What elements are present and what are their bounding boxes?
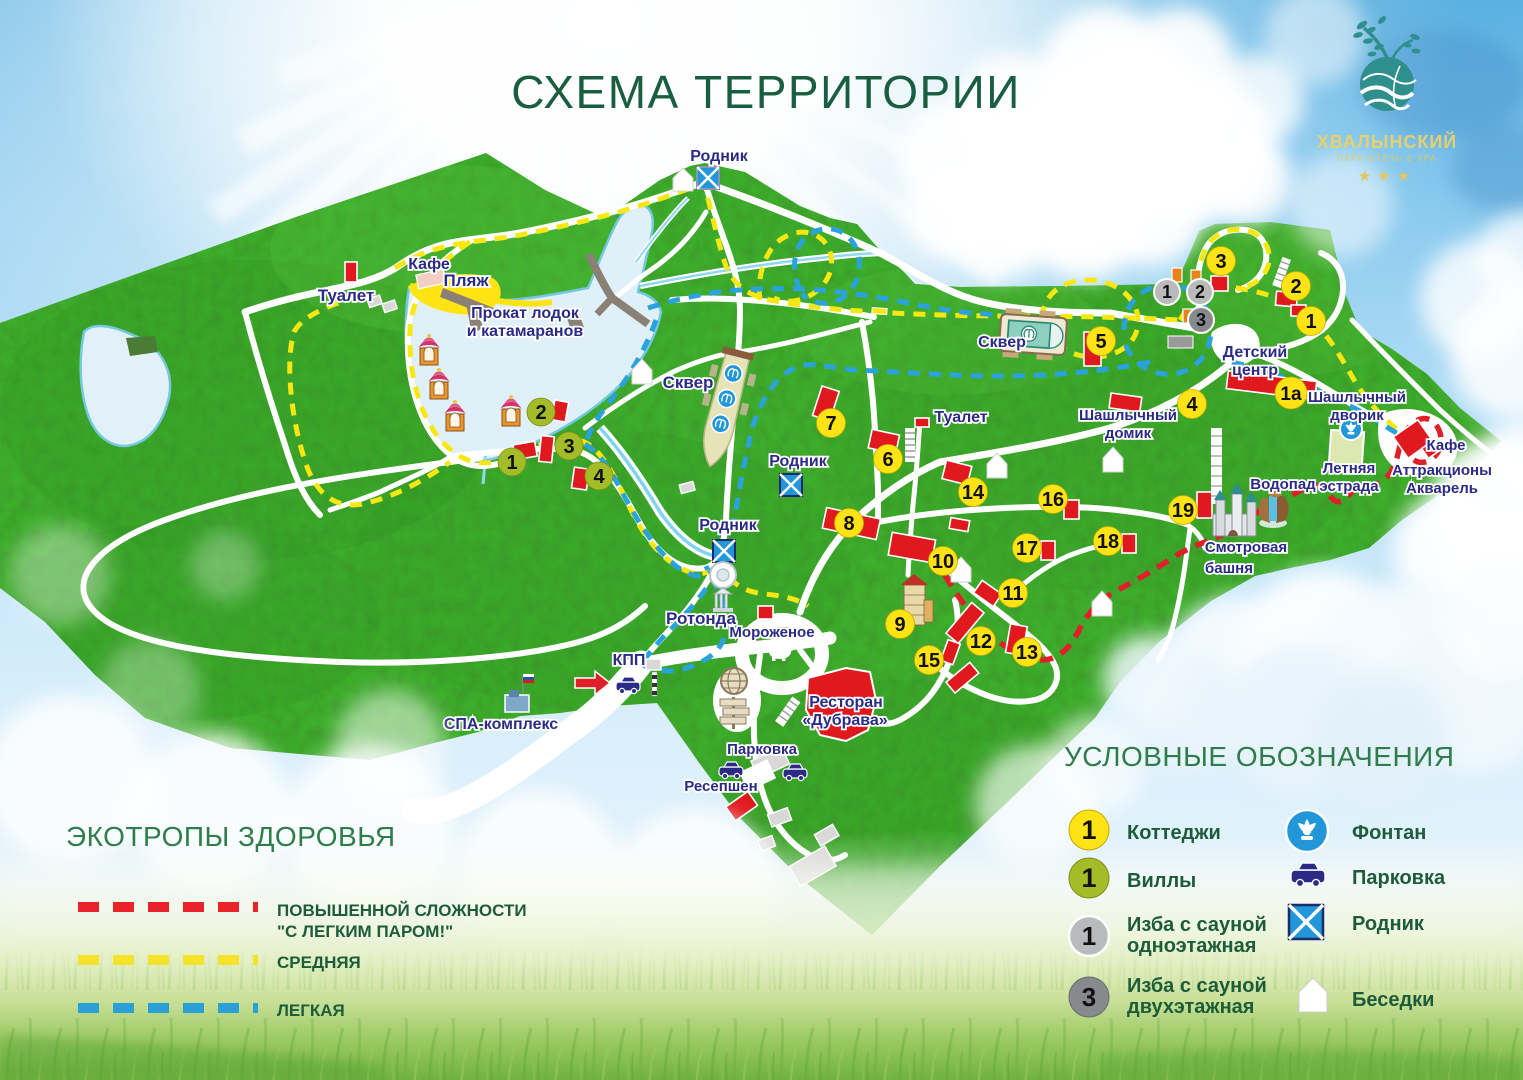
svg-text:Мороженое: Мороженое — [729, 624, 814, 641]
svg-text:Ротонда: Ротонда — [666, 609, 736, 628]
svg-text:УСЛОВНЫЕ ОБОЗНАЧЕНИЯ: УСЛОВНЫЕ ОБОЗНАЧЕНИЯ — [1064, 741, 1455, 772]
svg-text:1: 1 — [1081, 815, 1096, 845]
svg-text:8: 8 — [843, 513, 854, 535]
svg-text:12: 12 — [970, 631, 992, 653]
svg-text:одноэтажная: одноэтажная — [1127, 935, 1256, 957]
svg-text:3: 3 — [1196, 310, 1206, 330]
svg-text:ПОВЫШЕННОЙ СЛОЖНОСТИ: ПОВЫШЕННОЙ СЛОЖНОСТИ — [277, 901, 527, 920]
svg-text:"С ЛЕГКИМ ПАРОМ!": "С ЛЕГКИМ ПАРОМ!" — [277, 922, 453, 941]
svg-text:9: 9 — [894, 614, 905, 636]
svg-text:16: 16 — [1042, 489, 1064, 511]
svg-text:дворик: дворик — [1330, 407, 1384, 424]
svg-text:эстрада: эстрада — [1319, 478, 1379, 495]
svg-text:«Дубрава»: «Дубрава» — [802, 712, 887, 729]
svg-text:17: 17 — [1016, 538, 1038, 560]
svg-text:и катамаранов: и катамаранов — [467, 323, 584, 340]
svg-text:центр: центр — [1232, 362, 1278, 379]
svg-text:14: 14 — [962, 482, 985, 504]
svg-text:Акварель: Акварель — [1406, 480, 1478, 497]
svg-text:2: 2 — [1195, 282, 1205, 302]
svg-text:Детский: Детский — [1223, 344, 1287, 361]
svg-text:Водопад: Водопад — [1250, 476, 1316, 493]
svg-text:двухэтажная: двухэтажная — [1127, 996, 1254, 1018]
svg-text:4: 4 — [1186, 394, 1198, 416]
svg-text:Летняя: Летняя — [1323, 460, 1376, 477]
svg-text:Кафе: Кафе — [1427, 437, 1466, 454]
svg-text:3: 3 — [1082, 982, 1096, 1012]
svg-text:1: 1 — [1081, 863, 1096, 893]
svg-text:Шашлычный: Шашлычный — [1308, 389, 1406, 406]
svg-text:1: 1 — [1305, 311, 1316, 333]
svg-text:1a: 1a — [1280, 384, 1302, 405]
svg-text:★★★: ★★★ — [1358, 168, 1416, 185]
svg-text:11: 11 — [1002, 583, 1023, 605]
svg-text:Сквер: Сквер — [978, 334, 1026, 351]
svg-text:СРЕДНЯЯ: СРЕДНЯЯ — [277, 953, 361, 972]
svg-text:Родник: Родник — [699, 517, 757, 534]
svg-text:башня: башня — [1205, 560, 1253, 577]
svg-text:Парковка: Парковка — [727, 741, 797, 758]
svg-text:1: 1 — [1082, 921, 1096, 951]
svg-text:Пляж: Пляж — [444, 271, 490, 290]
svg-text:Шашлычный: Шашлычный — [1079, 407, 1177, 424]
svg-text:Туалет: Туалет — [934, 409, 987, 426]
svg-text:Сквер: Сквер — [663, 373, 714, 392]
svg-text:Родник: Родник — [1352, 913, 1425, 935]
svg-text:Смотровая: Смотровая — [1205, 539, 1287, 556]
svg-text:2: 2 — [1290, 276, 1301, 298]
svg-text:ЛЕГКАЯ: ЛЕГКАЯ — [277, 1001, 345, 1020]
svg-text:13: 13 — [1016, 642, 1038, 664]
svg-text:ЭКОТРОПЫ ЗДОРОВЬЯ: ЭКОТРОПЫ ЗДОРОВЬЯ — [66, 821, 396, 852]
svg-text:СХЕМА ТЕРРИТОРИИ: СХЕМА ТЕРРИТОРИИ — [511, 66, 1021, 118]
svg-text:Туалет: Туалет — [318, 286, 375, 305]
svg-text:4: 4 — [593, 466, 605, 488]
svg-text:Беседки: Беседки — [1352, 989, 1434, 1011]
svg-text:3: 3 — [563, 436, 574, 458]
svg-text:3: 3 — [1215, 251, 1226, 273]
svg-text:Виллы: Виллы — [1127, 870, 1196, 892]
svg-text:Родник: Родник — [690, 148, 748, 165]
svg-text:Коттеджи: Коттеджи — [1127, 822, 1221, 844]
svg-text:15: 15 — [918, 650, 940, 672]
svg-text:Изба с сауной: Изба с сауной — [1127, 914, 1267, 936]
svg-text:Родник: Родник — [769, 453, 827, 470]
svg-text:Аттракционы: Аттракционы — [1392, 462, 1492, 479]
svg-text:19: 19 — [1172, 500, 1194, 522]
svg-text:6: 6 — [882, 449, 893, 471]
svg-text:1: 1 — [1162, 282, 1172, 302]
svg-text:КПП: КПП — [613, 652, 646, 669]
svg-text:10: 10 — [932, 551, 954, 573]
svg-text:СПА-комплекс: СПА-комплекс — [444, 716, 558, 733]
svg-text:Ресепшен: Ресепшен — [684, 778, 757, 795]
svg-text:Ресторан: Ресторан — [809, 694, 883, 711]
svg-text:Парковка: Парковка — [1352, 867, 1446, 889]
svg-text:7: 7 — [825, 413, 836, 435]
svg-text:1: 1 — [506, 452, 517, 474]
svg-text:5: 5 — [1095, 331, 1106, 353]
svg-text:ПАРК-ОТЕЛЬ & SPA: ПАРК-ОТЕЛЬ & SPA — [1337, 154, 1437, 163]
svg-text:ХВАЛЫНСКИЙ: ХВАЛЫНСКИЙ — [1317, 131, 1457, 152]
svg-text:домик: домик — [1105, 425, 1152, 442]
svg-text:Прокат лодок: Прокат лодок — [471, 305, 580, 322]
svg-text:Фонтан: Фонтан — [1352, 822, 1426, 844]
svg-text:Изба с сауной: Изба с сауной — [1127, 975, 1267, 997]
svg-text:2: 2 — [535, 402, 546, 424]
svg-text:18: 18 — [1097, 531, 1119, 553]
